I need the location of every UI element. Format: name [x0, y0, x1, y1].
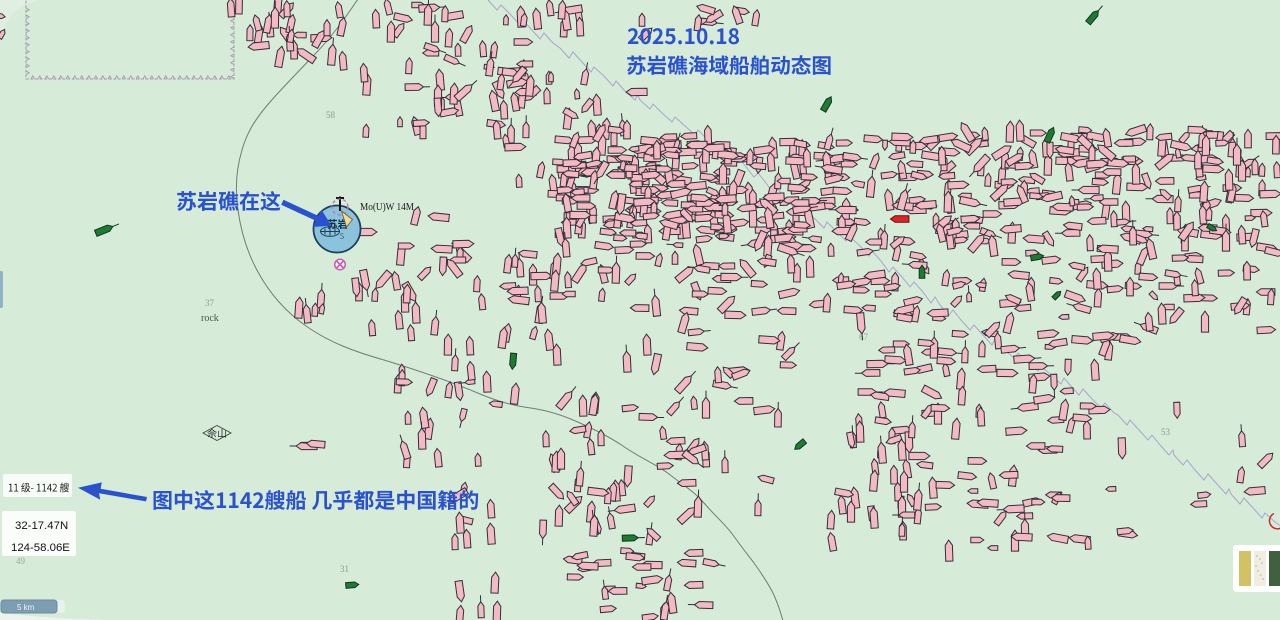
svg-text:37: 37 — [205, 298, 215, 308]
svg-text:49: 49 — [16, 556, 26, 566]
svg-text:rock: rock — [201, 313, 219, 324]
svg-text:58: 58 — [326, 110, 336, 120]
svg-text:32-17.47N: 32-17.47N — [15, 520, 68, 532]
svg-text:5 km: 5 km — [17, 603, 35, 612]
svg-text:67: 67 — [859, 332, 869, 342]
svg-text:53: 53 — [1161, 427, 1171, 437]
svg-text:5: 5 — [340, 232, 344, 241]
svg-text:31: 31 — [340, 564, 349, 574]
svg-text:124-58.06E: 124-58.06E — [11, 542, 70, 554]
svg-text:Mo(U)W 14M: Mo(U)W 14M — [360, 202, 414, 213]
